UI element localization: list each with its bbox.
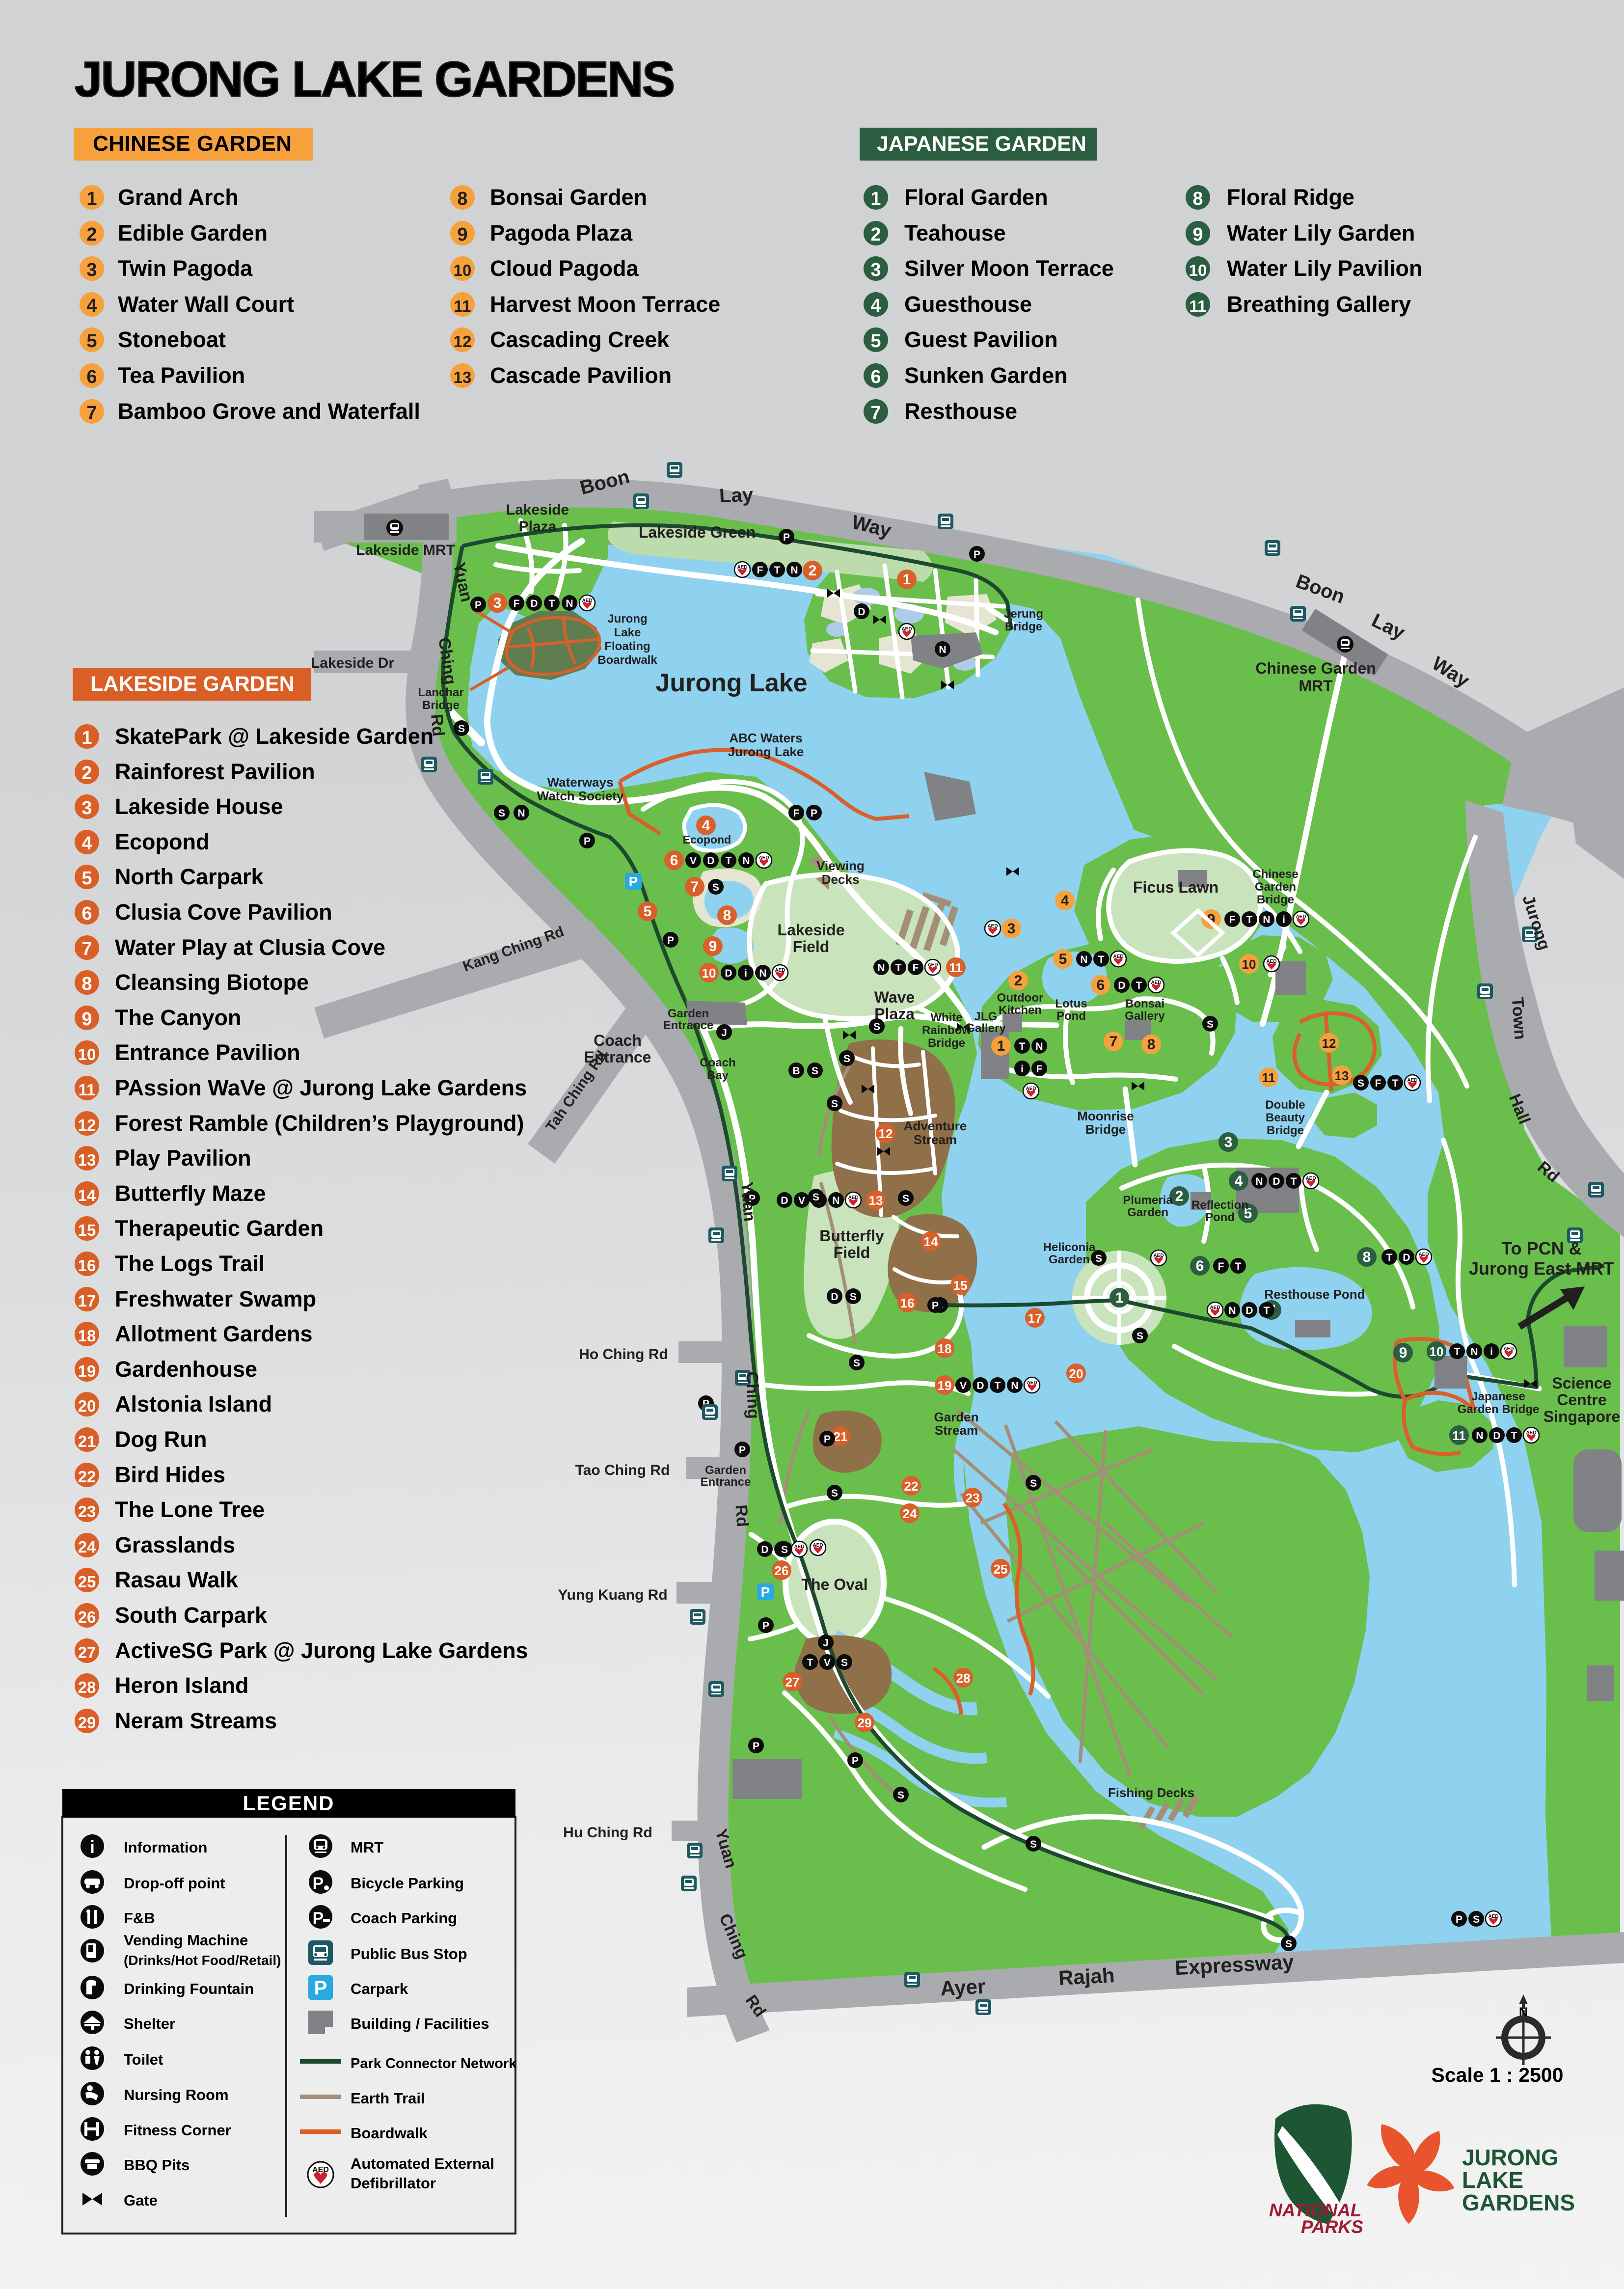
svg-text:P: P [313,1909,324,1928]
svg-text:Automated External: Automated External [351,2155,494,2172]
svg-text:Breathing Gallery: Breathing Gallery [1227,292,1411,317]
svg-text:8: 8 [457,189,467,209]
svg-text:Pond: Pond [1056,1009,1086,1023]
svg-text:27: 27 [785,1675,800,1689]
svg-text:Bay: Bay [707,1069,729,1082]
svg-text:Field: Field [834,1244,870,1261]
svg-text:S: S [1207,1019,1214,1030]
svg-text:D: D [1245,1305,1253,1316]
svg-text:T: T [1019,1041,1026,1052]
svg-text:Kitchen: Kitchen [999,1004,1042,1017]
svg-text:P: P [629,874,638,889]
svg-text:Heron Island: Heron Island [115,1673,249,1698]
svg-text:Cleansing Biotope: Cleansing Biotope [115,970,309,995]
svg-text:Grand Arch: Grand Arch [118,185,239,210]
svg-text:6: 6 [86,367,97,387]
svg-text:Garden: Garden [1127,1206,1168,1219]
svg-text:4: 4 [1235,1173,1243,1189]
svg-text:22: 22 [78,1468,96,1486]
svg-text:10: 10 [1242,957,1256,972]
svg-text:28: 28 [78,1678,96,1696]
svg-text:(Drinks/Hot Food/Retail): (Drinks/Hot Food/Retail) [124,1953,281,1968]
svg-text:D: D [1403,1252,1410,1263]
svg-text:Hu Ching Rd: Hu Ching Rd [563,1825,652,1841]
svg-text:1: 1 [86,189,97,209]
svg-text:29: 29 [78,1714,96,1732]
svg-text:N: N [1255,1176,1263,1187]
svg-text:D: D [725,968,732,979]
svg-text:D: D [1118,980,1125,991]
svg-text:Fishing Decks: Fishing Decks [1108,1785,1194,1800]
svg-text:6: 6 [670,852,678,869]
svg-text:9: 9 [709,938,717,954]
svg-text:25: 25 [78,1573,96,1591]
svg-text:S: S [1357,1078,1364,1089]
svg-text:P: P [739,1444,746,1456]
svg-text:The Oval: The Oval [801,1576,867,1593]
svg-text:To PCN &: To PCN & [1501,1238,1581,1258]
svg-text:J: J [721,1027,727,1038]
svg-text:T: T [1291,1176,1297,1187]
svg-text:J: J [823,1637,829,1649]
svg-text:9: 9 [1399,1345,1407,1361]
svg-text:S: S [1030,1478,1037,1489]
svg-text:Gate: Gate [124,2192,158,2209]
svg-text:16: 16 [900,1296,915,1310]
svg-text:S: S [1030,1839,1037,1850]
svg-text:10: 10 [78,1045,96,1063]
svg-text:ActiveSG Park @ Jurong Lake Ga: ActiveSG Park @ Jurong Lake Gardens [115,1638,528,1663]
svg-text:Stoneboat: Stoneboat [118,327,226,352]
svg-text:11: 11 [1190,297,1207,315]
svg-text:V: V [960,1380,967,1391]
svg-text:P: P [314,1977,327,1999]
svg-text:Cloud Pagoda: Cloud Pagoda [490,256,639,281]
svg-text:B: B [792,1065,800,1077]
svg-text:T: T [1136,980,1142,991]
svg-text:20: 20 [1069,1366,1083,1381]
svg-text:1: 1 [870,189,881,209]
svg-text:11: 11 [79,1081,96,1099]
svg-text:Clusia Cove Pavilion: Clusia Cove Pavilion [115,899,332,925]
svg-text:Teahouse: Teahouse [904,220,1006,245]
svg-text:Adventure: Adventure [904,1118,967,1133]
svg-text:The Canyon: The Canyon [115,1005,242,1030]
svg-text:T: T [726,855,732,867]
svg-text:N: N [1470,1346,1478,1358]
svg-text:Lakeside Dr: Lakeside Dr [311,655,394,671]
svg-text:Science: Science [1552,1374,1612,1392]
svg-text:6: 6 [870,367,881,387]
svg-text:29: 29 [858,1716,872,1730]
svg-text:S: S [853,1358,860,1369]
svg-text:Singapore: Singapore [1543,1408,1620,1425]
svg-text:4: 4 [81,833,92,854]
svg-text:S: S [1473,1914,1480,1925]
svg-text:Stream: Stream [914,1132,957,1147]
svg-text:Drop-off point: Drop-off point [124,1875,225,1892]
svg-text:D: D [1272,1176,1280,1187]
svg-text:S: S [841,1657,848,1668]
svg-text:D: D [976,1380,984,1391]
svg-text:2: 2 [81,763,92,784]
svg-text:Bridge: Bridge [928,1036,965,1050]
svg-text:Floral Ridge: Floral Ridge [1227,185,1354,210]
svg-text:Guesthouse: Guesthouse [904,292,1032,317]
svg-text:S: S [1285,1938,1292,1950]
svg-text:i: i [1490,1346,1493,1358]
svg-text:3: 3 [86,260,97,280]
svg-text:13: 13 [78,1151,96,1169]
svg-text:5: 5 [870,331,881,352]
svg-text:11: 11 [949,960,963,975]
svg-text:SkatePark @ Lakeside Garden: SkatePark @ Lakeside Garden [115,724,433,749]
svg-text:6: 6 [1196,1258,1204,1274]
svg-text:T: T [895,962,902,974]
svg-text:21: 21 [78,1432,96,1450]
svg-text:Rd: Rd [731,1504,752,1527]
svg-text:Information: Information [124,1839,208,1856]
svg-text:Butterfly: Butterfly [819,1227,884,1245]
svg-text:N: N [1228,1305,1236,1316]
svg-text:Entrance: Entrance [701,1475,751,1489]
svg-text:Chinese Garden: Chinese Garden [1255,659,1376,677]
svg-text:Play Pavilion: Play Pavilion [115,1145,251,1171]
svg-text:JLG: JLG [974,1010,998,1023]
svg-text:Rajah: Rajah [1058,1963,1115,1989]
svg-text:D: D [858,606,865,618]
svg-text:Toilet: Toilet [124,2051,163,2068]
svg-text:Bridge: Bridge [1085,1122,1126,1137]
svg-text:Vending Machine: Vending Machine [124,1932,248,1949]
svg-text:P: P [475,599,482,611]
svg-text:1: 1 [997,1038,1005,1054]
svg-text:Cascading Creek: Cascading Creek [490,327,670,352]
svg-text:Viewing: Viewing [816,858,865,873]
svg-text:Lakeside MRT: Lakeside MRT [356,542,455,558]
svg-text:S: S [781,1544,788,1555]
svg-text:S: S [1137,1331,1143,1342]
svg-text:GARDENS: GARDENS [1462,2190,1575,2215]
svg-text:10: 10 [702,966,716,981]
svg-text:1: 1 [903,572,911,588]
svg-text:Ecopond: Ecopond [115,829,209,854]
svg-text:4: 4 [1061,893,1069,909]
svg-text:Stream: Stream [935,1423,978,1438]
svg-text:Silver Moon Terrace: Silver Moon Terrace [904,256,1114,281]
svg-text:5: 5 [86,331,97,352]
svg-text:JURONG: JURONG [1462,2145,1559,2170]
svg-text:8: 8 [723,907,731,924]
svg-text:Entrance: Entrance [584,1048,651,1066]
svg-text:F: F [1229,914,1236,926]
svg-text:Lake: Lake [614,626,641,639]
svg-text:N: N [939,644,946,655]
svg-text:9: 9 [1192,224,1203,245]
svg-text:Coach: Coach [594,1032,642,1049]
svg-text:D: D [761,1544,768,1555]
svg-text:Earth Trail: Earth Trail [351,2090,425,2107]
svg-text:Tea Pavilion: Tea Pavilion [118,363,245,388]
svg-text:i: i [744,968,747,979]
svg-text:Japanese: Japanese [1471,1390,1525,1403]
svg-text:N: N [759,968,766,979]
svg-text:P: P [974,549,980,560]
svg-text:Carpark: Carpark [351,1980,408,1997]
svg-text:12: 12 [454,332,472,351]
svg-text:14: 14 [924,1234,938,1249]
svg-text:LAKE: LAKE [1462,2167,1523,2193]
svg-text:Fitness Corner: Fitness Corner [124,2122,231,2139]
svg-text:CHINESE GARDEN: CHINESE GARDEN [93,132,292,156]
svg-text:Town: Town [1508,997,1530,1040]
svg-text:21: 21 [834,1429,848,1444]
svg-text:P: P [824,1434,831,1445]
svg-text:Ho Ching Rd: Ho Ching Rd [579,1346,668,1362]
svg-text:Jurong: Jurong [607,612,647,626]
svg-text:11: 11 [1452,1428,1466,1443]
svg-text:F: F [1375,1078,1381,1089]
svg-text:Resthouse Pond: Resthouse Pond [1264,1287,1365,1302]
svg-text:12: 12 [879,1126,893,1141]
svg-text:Rasau Walk: Rasau Walk [115,1567,239,1592]
svg-text:S: S [458,723,465,735]
svg-text:Plaza: Plaza [874,1005,915,1023]
svg-text:Lakeside Green: Lakeside Green [639,523,756,541]
svg-text:5: 5 [81,868,92,889]
svg-text:7: 7 [870,403,881,423]
svg-text:17: 17 [78,1292,96,1310]
svg-text:Rainbow: Rainbow [922,1024,971,1037]
svg-text:S: S [897,1790,904,1801]
svg-text:Water Lily Pavilion: Water Lily Pavilion [1227,256,1422,281]
svg-text:D: D [1493,1430,1500,1442]
svg-text:22: 22 [904,1479,919,1494]
svg-text:11: 11 [1262,1070,1275,1085]
svg-text:Garden: Garden [668,1007,709,1020]
svg-text:Boardwalk: Boardwalk [597,654,657,667]
svg-text:13: 13 [454,368,472,386]
svg-text:T: T [1264,1305,1270,1316]
svg-text:S: S [1095,1253,1102,1264]
svg-text:Garden: Garden [705,1464,746,1477]
svg-text:T: T [807,1657,813,1668]
svg-text:MRT: MRT [1299,677,1333,695]
svg-text:Public Bus Stop: Public Bus Stop [351,1945,467,1962]
svg-text:9: 9 [81,1009,92,1030]
svg-text:Reflection: Reflection [1191,1199,1248,1212]
svg-text:2: 2 [870,224,881,245]
svg-text:8: 8 [1363,1249,1371,1265]
svg-text:P: P [811,808,817,819]
svg-text:Pagoda Plaza: Pagoda Plaza [490,220,633,245]
svg-text:PARKS: PARKS [1301,2217,1363,2237]
svg-text:D: D [530,598,538,609]
svg-text:LAKESIDE GARDEN: LAKESIDE GARDEN [90,672,295,696]
svg-text:Guest Pavilion: Guest Pavilion [904,327,1058,352]
svg-text:P: P [753,1741,759,1752]
svg-text:T: T [1098,954,1105,965]
svg-text:S: S [712,882,719,893]
svg-text:7: 7 [86,403,97,423]
svg-text:Ching: Ching [742,1371,762,1419]
svg-text:T: T [1246,914,1253,926]
svg-text:The Logs Trail: The Logs Trail [115,1251,265,1276]
svg-text:14: 14 [78,1186,96,1204]
svg-text:19: 19 [938,1378,952,1393]
svg-text:T: T [1386,1252,1393,1263]
svg-text:15: 15 [953,1278,968,1293]
svg-text:Double: Double [1265,1098,1305,1112]
svg-text:27: 27 [78,1643,96,1662]
svg-text:26: 26 [78,1608,96,1626]
svg-text:P: P [584,836,591,847]
svg-text:Shelter: Shelter [124,2015,175,2032]
svg-text:D: D [831,1291,838,1303]
svg-text:N: N [1011,1380,1018,1391]
svg-text:Scale 1 : 2500: Scale 1 : 2500 [1432,2064,1564,2086]
svg-text:Coach Parking: Coach Parking [351,1909,457,1927]
svg-text:N: N [1080,954,1087,965]
svg-text:Entrance: Entrance [663,1019,714,1032]
svg-text:Pond: Pond [1205,1211,1235,1224]
svg-text:South Carpark: South Carpark [115,1603,268,1628]
svg-text:Lakeside: Lakeside [778,921,845,939]
svg-text:Therapeutic Garden: Therapeutic Garden [115,1216,324,1241]
svg-text:18: 18 [78,1327,96,1345]
svg-text:Boardwalk: Boardwalk [351,2125,428,2142]
svg-text:F: F [913,962,919,974]
svg-text:Bridge: Bridge [1257,893,1294,906]
svg-text:6: 6 [81,903,92,924]
svg-text:Bird Hides: Bird Hides [115,1462,225,1487]
svg-text:JURONG LAKE GARDENS: JURONG LAKE GARDENS [75,52,674,107]
svg-text:16: 16 [78,1256,96,1275]
svg-text:3: 3 [1007,921,1016,937]
svg-text:Bamboo Grove and Waterfall: Bamboo Grove and Waterfall [118,399,420,424]
svg-text:Bicycle Parking: Bicycle Parking [351,1875,464,1892]
svg-text:Plumeria: Plumeria [1123,1194,1173,1207]
svg-text:Nursing Room: Nursing Room [124,2086,229,2103]
svg-text:Outdoor: Outdoor [997,991,1044,1005]
svg-text:i: i [90,1837,95,1857]
svg-text:Ecopond: Ecopond [683,833,731,846]
svg-text:Resthouse: Resthouse [904,399,1017,424]
svg-text:7: 7 [1110,1034,1118,1050]
svg-text:Rainforest Pavilion: Rainforest Pavilion [115,759,315,784]
svg-text:4: 4 [86,296,97,316]
svg-text:Cascade Pavilion: Cascade Pavilion [490,363,672,388]
svg-text:P: P [762,1620,769,1632]
svg-text:10: 10 [1189,261,1207,279]
svg-text:D: D [781,1195,788,1206]
svg-text:3: 3 [870,260,881,280]
svg-text:T: T [1454,1346,1461,1358]
svg-text:23: 23 [78,1502,96,1521]
svg-text:N: N [1035,1041,1043,1052]
svg-text:15: 15 [78,1221,96,1239]
svg-text:Harvest Moon Terrace: Harvest Moon Terrace [490,292,720,317]
svg-text:Wave: Wave [874,988,915,1006]
svg-text:8: 8 [81,974,92,994]
svg-text:ABC Waters: ABC Waters [729,731,802,745]
svg-text:4: 4 [870,296,881,316]
svg-text:Butterfly Maze: Butterfly Maze [115,1181,266,1206]
svg-text:T: T [1511,1430,1517,1442]
svg-text:1: 1 [81,728,92,748]
svg-text:Watch Society: Watch Society [537,789,624,803]
svg-text:F: F [757,565,763,576]
svg-text:S: S [902,1193,909,1204]
svg-text:Gardenhouse: Gardenhouse [115,1357,257,1382]
svg-text:2: 2 [809,563,817,579]
svg-text:P: P [667,935,674,946]
svg-text:F: F [1036,1063,1043,1075]
svg-text:23: 23 [966,1491,980,1505]
svg-text:Moonrise: Moonrise [1077,1109,1134,1123]
svg-text:Garden: Garden [1049,1253,1090,1266]
svg-text:T: T [549,598,555,609]
svg-text:T: T [774,565,781,576]
svg-text:Bridge: Bridge [1005,620,1042,633]
svg-text:Centre: Centre [1557,1391,1606,1409]
svg-text:F: F [514,598,520,609]
svg-text:PAssion WaVe @ Jurong Lake Gar: PAssion WaVe @ Jurong Lake Gardens [115,1075,527,1100]
svg-text:Forest Ramble (Children’s Play: Forest Ramble (Children’s Playground) [115,1111,524,1136]
svg-text:F&B: F&B [124,1909,155,1927]
svg-text:S: S [831,1098,838,1110]
svg-text:P: P [761,1584,770,1600]
svg-text:MRT: MRT [351,1839,383,1856]
svg-text:19: 19 [78,1362,96,1380]
svg-text:3: 3 [81,798,92,818]
svg-text:P: P [932,1300,939,1311]
svg-text:2: 2 [86,224,97,245]
svg-text:Beauty: Beauty [1266,1111,1305,1124]
svg-text:Coach: Coach [700,1056,735,1069]
svg-text:Grasslands: Grasslands [115,1532,235,1557]
svg-text:2: 2 [1014,973,1023,989]
svg-text:28: 28 [956,1671,971,1686]
svg-text:Lakeside House: Lakeside House [115,794,283,819]
svg-text:White: White [930,1011,962,1024]
svg-text:N: N [742,855,750,867]
svg-text:AED: AED [312,2166,329,2174]
svg-text:25: 25 [994,1562,1008,1577]
svg-text:N: N [566,598,573,609]
svg-text:N: N [1476,1430,1483,1442]
svg-text:Freshwater Swamp: Freshwater Swamp [115,1286,316,1311]
svg-text:Sunken Garden: Sunken Garden [904,363,1068,388]
svg-text:Gallery: Gallery [1125,1009,1165,1023]
svg-text:S: S [812,1192,819,1203]
svg-text:N: N [832,1195,839,1206]
svg-text:S: S [843,1053,850,1064]
svg-text:Plaza: Plaza [519,518,557,535]
svg-text:Alstonia Island: Alstonia Island [115,1391,272,1417]
svg-text:Entrance Pavilion: Entrance Pavilion [115,1040,300,1065]
svg-text:T: T [1392,1078,1399,1089]
svg-text:LEGEND: LEGEND [243,1792,334,1815]
svg-text:F: F [1218,1261,1224,1272]
svg-text:Jurong Lake: Jurong Lake [655,669,807,697]
svg-text:T: T [995,1380,1001,1391]
svg-text:S: S [873,1021,880,1033]
svg-text:Lay: Lay [719,484,754,507]
svg-text:Lotus: Lotus [1055,997,1087,1010]
svg-text:Twin Pagoda: Twin Pagoda [118,256,253,281]
svg-text:Park Connector Network: Park Connector Network [351,2056,517,2071]
